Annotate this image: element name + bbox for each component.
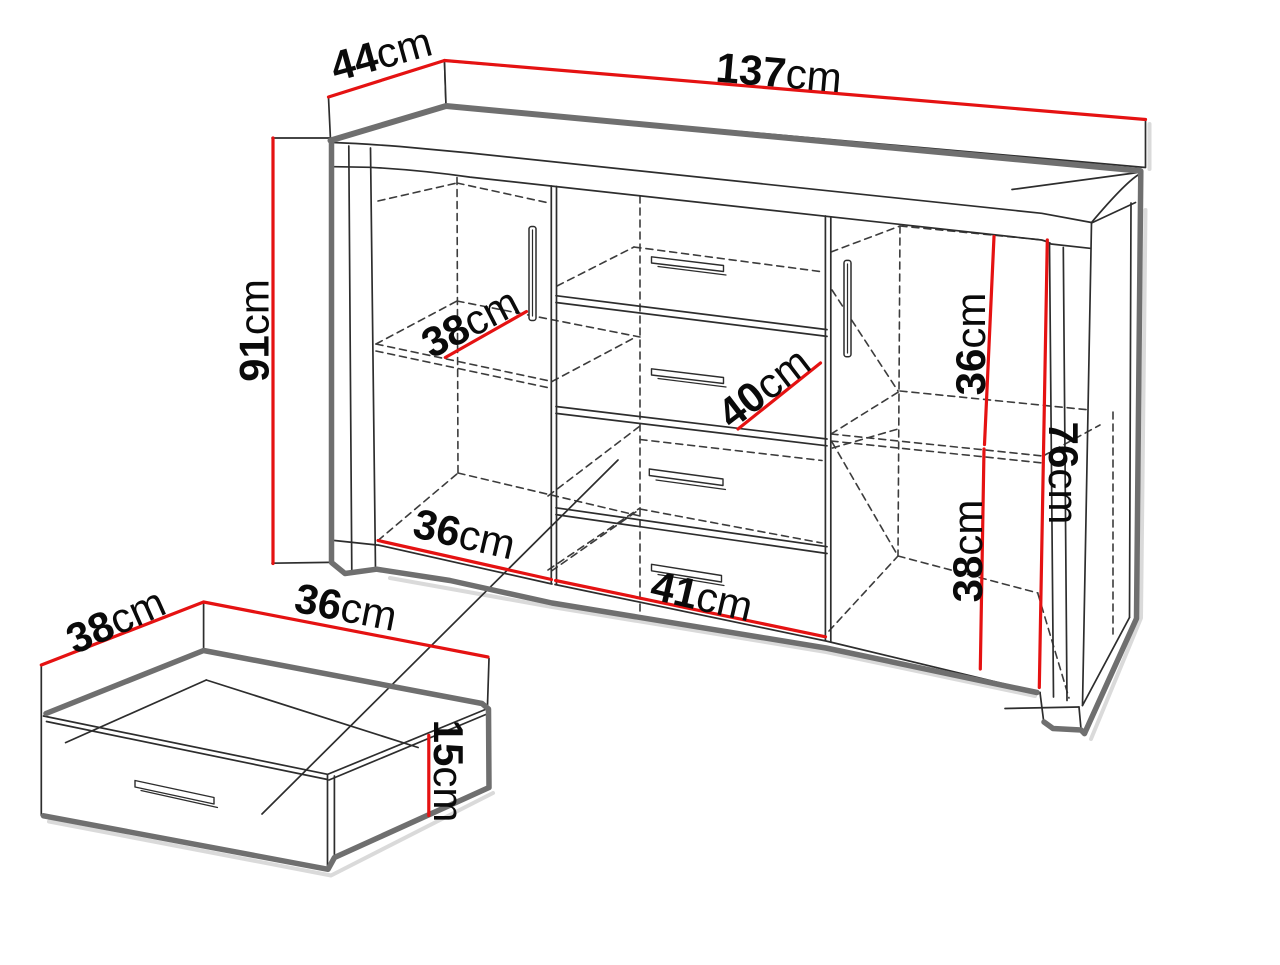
- svg-text:15cm: 15cm: [426, 720, 473, 823]
- svg-text:38cm: 38cm: [944, 500, 991, 603]
- svg-text:36cm: 36cm: [947, 293, 994, 396]
- svg-text:91cm: 91cm: [230, 279, 277, 382]
- svg-text:76cm: 76cm: [1041, 422, 1088, 525]
